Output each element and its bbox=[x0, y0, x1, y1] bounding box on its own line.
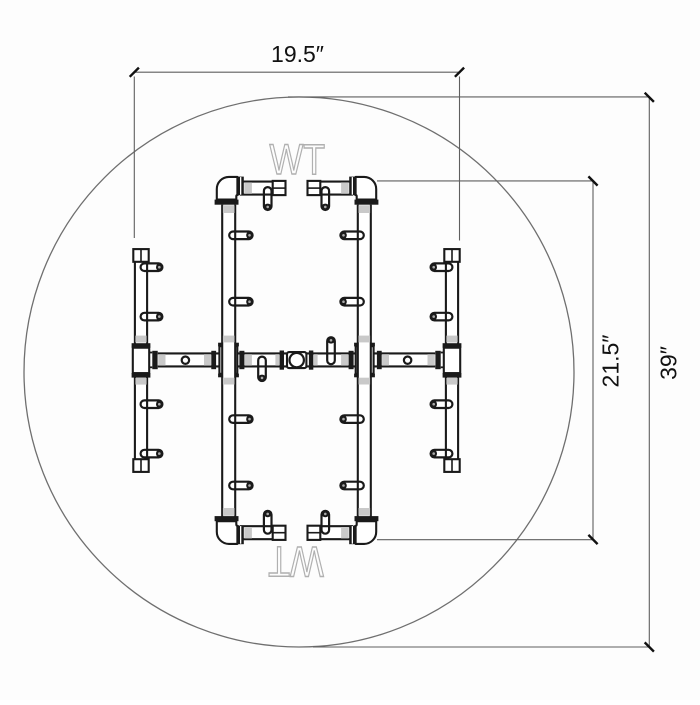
svg-text:WT: WT bbox=[268, 537, 324, 585]
svg-text:21.5″: 21.5″ bbox=[598, 335, 624, 388]
svg-text:39″: 39″ bbox=[656, 346, 682, 380]
svg-text:WT: WT bbox=[270, 136, 326, 184]
svg-text:19.5″: 19.5″ bbox=[271, 41, 324, 67]
